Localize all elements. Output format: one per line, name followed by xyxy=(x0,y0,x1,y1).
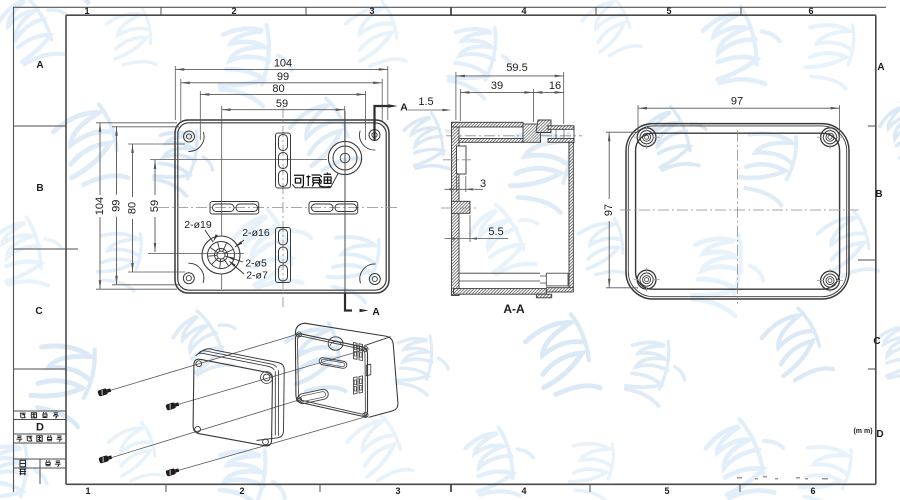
svg-text:1.5: 1.5 xyxy=(418,96,433,108)
svg-text:99: 99 xyxy=(277,71,289,83)
svg-text:59.5: 59.5 xyxy=(506,62,527,74)
svg-text:D: D xyxy=(36,422,44,434)
svg-text:(m m): (m m) xyxy=(853,428,872,435)
svg-text:D: D xyxy=(876,429,883,440)
svg-text:A: A xyxy=(372,306,380,318)
svg-text:97: 97 xyxy=(603,204,615,216)
svg-text:3: 3 xyxy=(480,178,486,190)
svg-text:2-ø16: 2-ø16 xyxy=(242,227,270,239)
svg-text:59: 59 xyxy=(276,98,288,110)
svg-text:A-A: A-A xyxy=(503,302,525,316)
svg-text:A: A xyxy=(36,60,43,71)
svg-text:2-ø5: 2-ø5 xyxy=(245,258,267,270)
svg-text:5: 5 xyxy=(664,486,669,496)
svg-text:80: 80 xyxy=(272,83,284,95)
svg-text:2: 2 xyxy=(239,486,244,496)
svg-text:16: 16 xyxy=(549,80,561,92)
svg-text:1: 1 xyxy=(84,6,89,16)
svg-text:B: B xyxy=(875,189,882,200)
svg-text:1: 1 xyxy=(85,486,90,496)
svg-text:3: 3 xyxy=(369,6,374,16)
svg-text:A: A xyxy=(400,102,408,114)
svg-text:104: 104 xyxy=(274,58,292,70)
svg-text:59: 59 xyxy=(149,200,161,212)
svg-text:2-ø19: 2-ø19 xyxy=(184,219,212,231)
svg-text:2-ø7: 2-ø7 xyxy=(246,270,268,282)
svg-text:39: 39 xyxy=(491,80,503,92)
svg-text:C: C xyxy=(35,306,42,317)
svg-text:3: 3 xyxy=(395,486,400,496)
svg-text:4: 4 xyxy=(521,486,526,496)
svg-text:4: 4 xyxy=(521,6,526,16)
svg-text:B: B xyxy=(36,183,43,194)
svg-text:A: A xyxy=(877,62,884,73)
svg-text:97: 97 xyxy=(731,96,743,108)
svg-text:2: 2 xyxy=(231,6,236,16)
svg-text:80: 80 xyxy=(126,202,138,214)
svg-text:C: C xyxy=(873,336,880,347)
svg-text:99: 99 xyxy=(110,200,122,212)
svg-text:104: 104 xyxy=(94,197,106,215)
svg-text:5.5: 5.5 xyxy=(488,226,503,238)
svg-text:6: 6 xyxy=(808,6,813,16)
svg-text:6: 6 xyxy=(810,486,815,496)
svg-text:5: 5 xyxy=(666,6,671,16)
